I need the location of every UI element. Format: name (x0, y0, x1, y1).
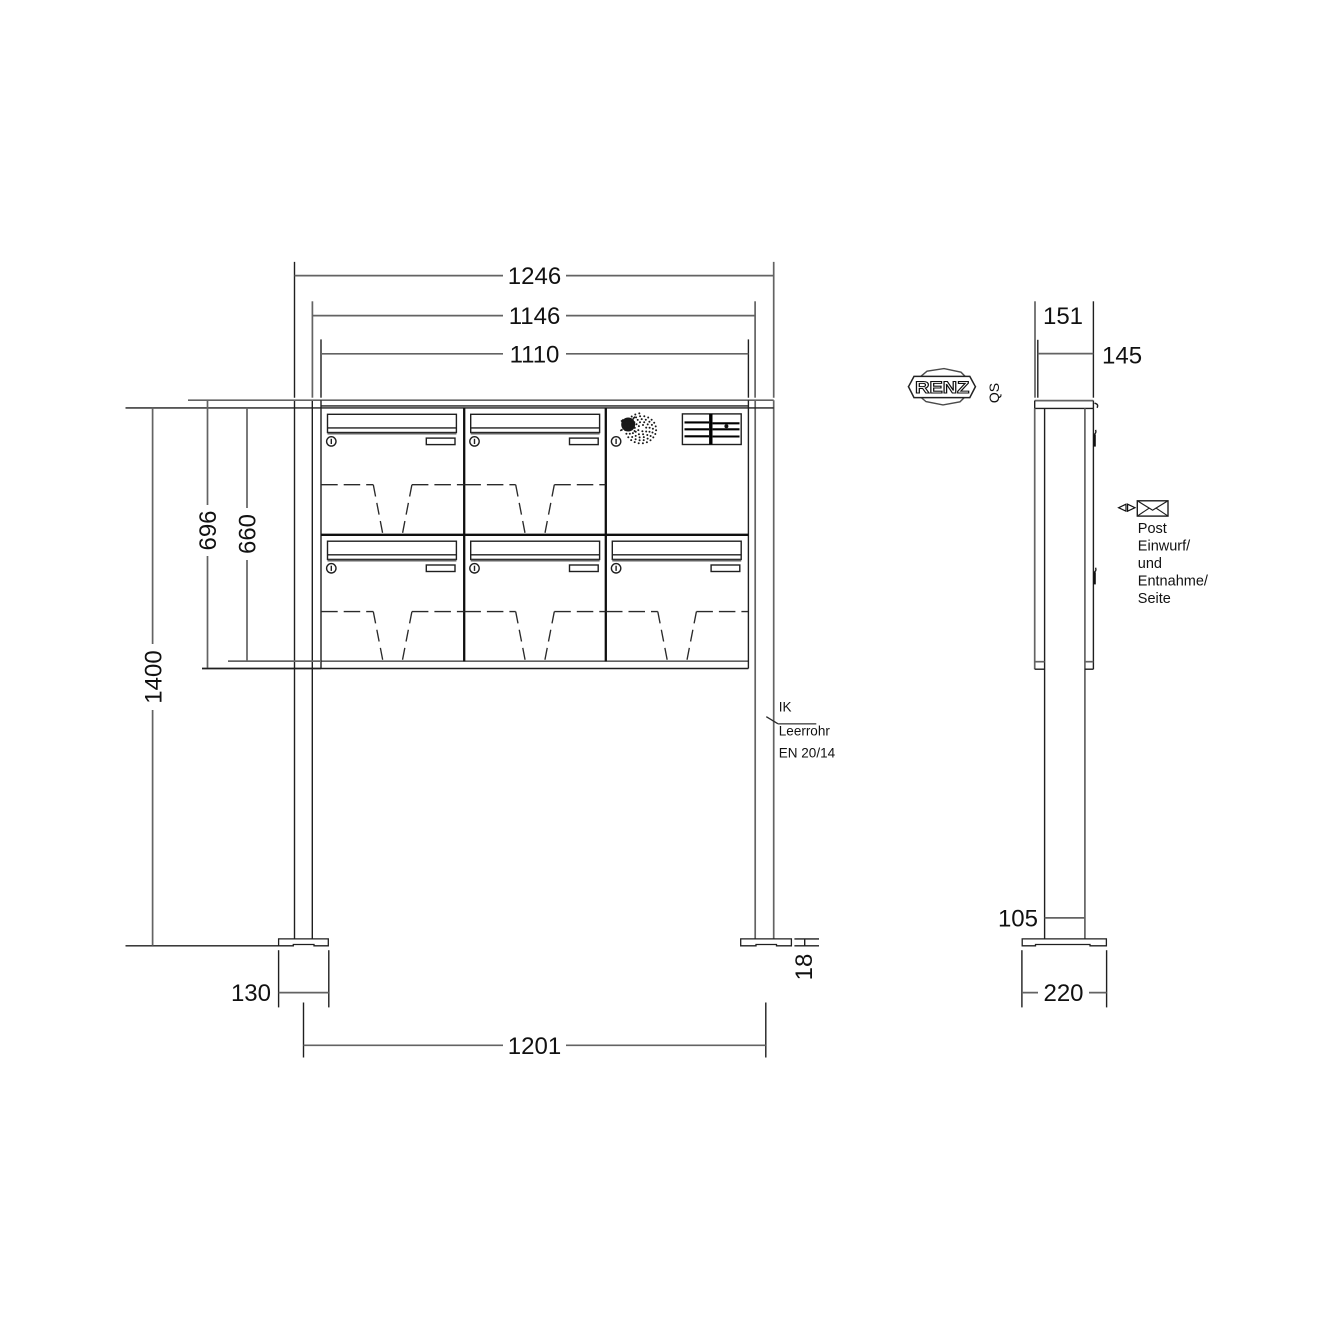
svg-text:1201: 1201 (508, 1033, 561, 1060)
svg-text:105: 105 (998, 905, 1038, 932)
svg-text:Seite: Seite (1138, 591, 1171, 607)
svg-text:EN 20/14: EN 20/14 (779, 746, 836, 761)
svg-text:RENZ: RENZ (915, 378, 969, 397)
svg-text:696: 696 (195, 510, 222, 550)
svg-text:18: 18 (791, 954, 818, 981)
svg-text:1400: 1400 (140, 650, 167, 703)
svg-text:Post: Post (1138, 521, 1167, 537)
svg-text:QS: QS (986, 383, 1002, 403)
svg-text:Leerrohr: Leerrohr (779, 724, 831, 739)
svg-text:130: 130 (231, 980, 271, 1007)
svg-text:660: 660 (235, 514, 262, 554)
svg-text:1146: 1146 (509, 303, 561, 330)
svg-text:145: 145 (1102, 342, 1142, 369)
svg-text:151: 151 (1043, 303, 1083, 330)
svg-text:1246: 1246 (508, 263, 561, 290)
svg-text:und: und (1138, 556, 1162, 572)
svg-text:IK: IK (779, 700, 792, 715)
svg-text:220: 220 (1043, 980, 1083, 1007)
svg-text:1110: 1110 (510, 341, 560, 368)
svg-text:Entnahme/: Entnahme/ (1138, 574, 1209, 590)
svg-text:Einwurf/: Einwurf/ (1138, 538, 1191, 554)
